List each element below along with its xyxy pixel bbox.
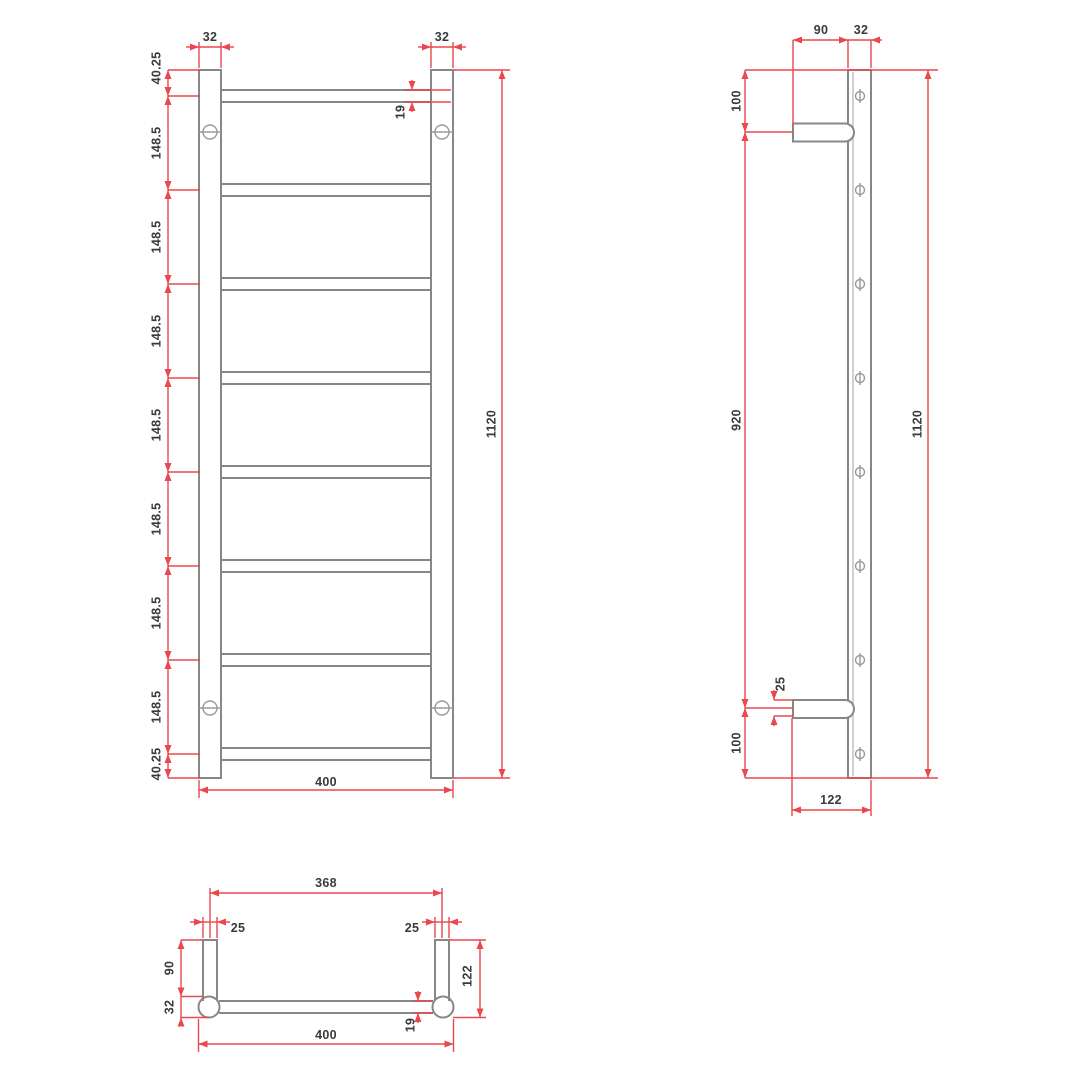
plan-overall-depth-label: 122 — [460, 965, 474, 987]
front-left-post — [199, 70, 221, 778]
side-bracket-thickness-label: 25 — [773, 677, 787, 692]
side-top-offset-label: 100 — [729, 90, 743, 112]
front-rung-tubes — [221, 90, 431, 760]
side-bottom-offset-label: 100 — [729, 732, 743, 754]
side-bottom-bracket — [793, 700, 854, 718]
plan-bracket-length-label: 90 — [162, 961, 176, 976]
plan-tube — [219, 1001, 433, 1013]
front-overall-width-label: 400 — [315, 775, 337, 789]
plan-view-geometry — [199, 940, 454, 1018]
plan-left-bracket — [203, 940, 217, 1001]
side-view-geometry — [793, 70, 871, 778]
side-post-depth-label: 32 — [854, 23, 869, 37]
front-chain-label-6: 148.5 — [149, 597, 163, 630]
side-bracket-length-label: 90 — [814, 23, 829, 37]
plan-bracket-width-left-label: 25 — [231, 921, 246, 935]
front-right-post — [431, 70, 453, 778]
side-view: 90 32 100 920 100 25 1120 122 — [729, 23, 938, 816]
technical-drawing-sheet: 32 32 40.25 148.5 148.5 148.5 148.5 148.… — [0, 0, 1080, 1080]
front-chain-label-4: 148.5 — [149, 409, 163, 442]
drawing-svg: 32 32 40.25 148.5 148.5 148.5 148.5 148.… — [0, 0, 1080, 1080]
side-overall-depth-label: 122 — [820, 793, 842, 807]
plan-view: 368 25 25 90 32 122 19 400 — [162, 876, 486, 1052]
front-chain-label-2: 148.5 — [149, 221, 163, 254]
front-chain-label-1: 148.5 — [149, 127, 163, 160]
side-top-bracket — [793, 124, 854, 142]
front-post-width-right-label: 32 — [435, 30, 450, 44]
front-mount-bracket-marks — [199, 125, 453, 715]
front-chain-label-8: 40.25 — [149, 748, 163, 781]
plan-tube-dia-label: 19 — [403, 1018, 417, 1033]
front-view: 32 32 40.25 148.5 148.5 148.5 148.5 148.… — [149, 30, 510, 798]
front-view-geometry — [199, 70, 453, 778]
side-post — [848, 70, 871, 778]
front-tube-dia-label: 19 — [393, 105, 407, 120]
plan-bracket-centres-label: 368 — [315, 876, 337, 890]
front-overall-height-label: 1120 — [484, 410, 498, 438]
front-chain-label-3: 148.5 — [149, 315, 163, 348]
plan-right-bracket — [435, 940, 449, 1001]
side-bracket-spacing-label: 920 — [729, 409, 743, 431]
plan-bracket-width-right-label: 25 — [405, 921, 420, 935]
front-chain-label-7: 148.5 — [149, 691, 163, 724]
plan-overall-width-label: 400 — [315, 1028, 337, 1042]
front-chain-label-0: 40.25 — [149, 52, 163, 85]
side-overall-height-label: 1120 — [910, 410, 924, 438]
front-chain-label-5: 148.5 — [149, 503, 163, 536]
front-post-width-left-label: 32 — [203, 30, 218, 44]
plan-post-dia-label: 32 — [162, 1000, 176, 1015]
